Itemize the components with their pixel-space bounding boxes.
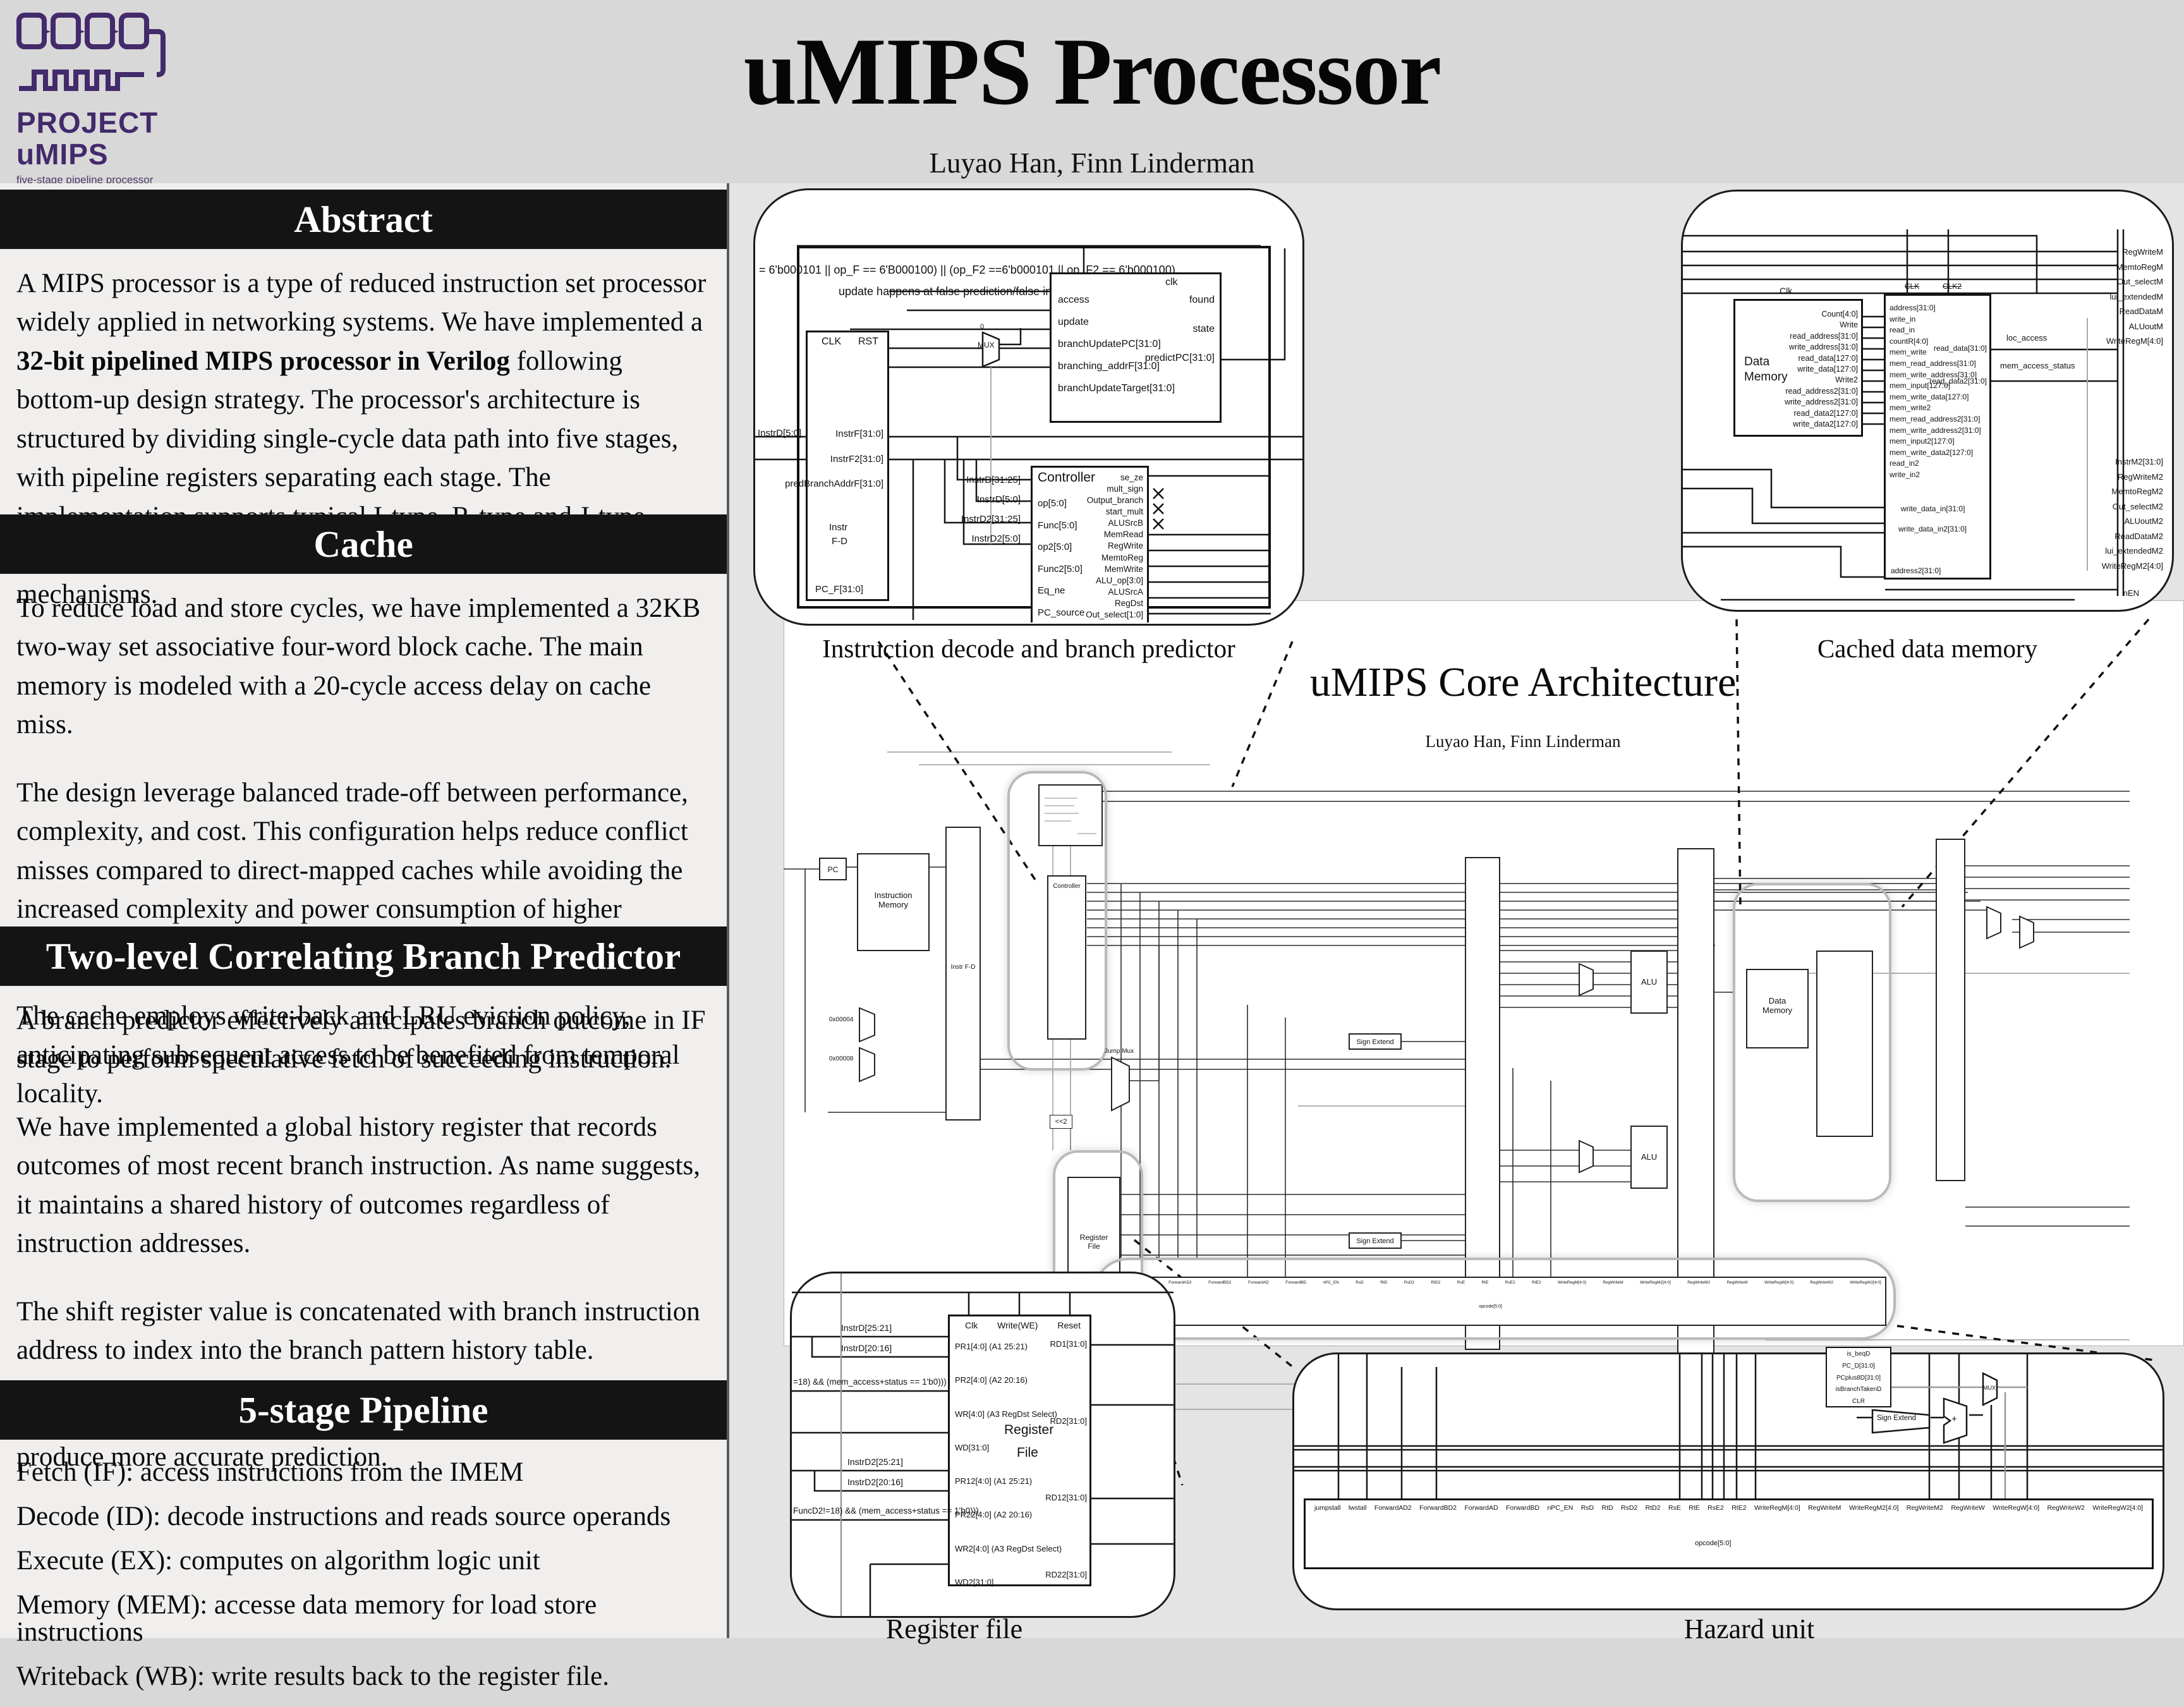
cache-port-label: mem_input2[127:0] [1890, 437, 1981, 446]
controller-output-port: Out_select[1:0] [1086, 610, 1143, 619]
cache-clk-label: CLK [1905, 282, 1919, 291]
controller-output-port: MemRead [1104, 530, 1143, 539]
cache-port-label: mem_write_data[127:0] [1890, 392, 1981, 401]
hazard-unit-block: jumpstalllwstallForwardAD2ForwardBD2Forw… [1304, 1498, 2154, 1569]
controller-output-port: MemtoReg [1101, 553, 1143, 562]
cache-locaccess-label: loc_access [2006, 333, 2047, 343]
bus-labels-top: RegWriteMMemtoRegMOut_selectMlui_extende… [2106, 247, 2163, 346]
dm-clk-label: Clk [1780, 286, 1792, 296]
hazard-signal-label: WriteRegW[4:0] [1993, 1504, 2039, 1512]
bus-signal-label: Out_selectM [2117, 277, 2163, 286]
hazard-signal-label: WriteRegW[4:0] [1764, 1280, 1793, 1285]
hazard-callout: jumpstalllwstallForwardAD2ForwardBD2Forw… [1292, 1352, 2164, 1610]
cache-wdin-label: write_data_in[31:0] [1901, 504, 1965, 513]
hazard-signal-label: RtD2 [1646, 1504, 1661, 1512]
hazard-signal-label: ForwardBD [1506, 1504, 1539, 1512]
fd-register-block: CLK RST InstrF[31:0]InstrF2[31:0]predBra… [806, 331, 889, 601]
hazard-signal-label: WriteRegM[4:0] [1558, 1280, 1586, 1285]
bp-paragraph-2: We have implemented a global history reg… [16, 1108, 713, 1263]
hazard-signal-label: RegWriteM [1603, 1280, 1623, 1285]
cache-port-label: mem_write_data2[127:0] [1890, 448, 1981, 457]
cache-port-label: read_in2 [1890, 459, 1981, 468]
rf-wire-c: =18) && (mem_access+status == 1'b0))) [793, 1377, 947, 1387]
bus-signal-label: lui_extendedM2 [2105, 546, 2163, 556]
controller-wire-labels: InstrD[31:25]InstrD[5:0]InstrD2[31:25]In… [938, 475, 1021, 544]
bus-signal-label: lui_extendedM [2109, 292, 2163, 301]
sidebar: Abstract A MIPS processor is a type of r… [0, 183, 729, 1638]
controller-output-port: ALUSrcB [1108, 518, 1143, 528]
dm-port-label: write_address2[31:0] [1785, 398, 1858, 406]
cache-out2-label: read_data2[31:0] [1929, 377, 1987, 386]
core-pc-block: PC [819, 858, 847, 880]
pipeline-stage-line: Memory (MEM): accesse data memory for lo… [16, 1591, 713, 1646]
section-title-abstract: Abstract [0, 190, 727, 249]
hazard-top-labels: jumpstalllwstallForwardAD2ForwardBD2Forw… [1314, 1504, 2143, 1512]
dm-port-label: read_data2[127:0] [1794, 409, 1858, 418]
dm-port-label: write_data2[127:0] [1793, 420, 1858, 428]
hazard-signal-label: ForwardBD2 [1208, 1280, 1231, 1285]
rf-top-labels: ClkWrite(WE)Reset [965, 1320, 1081, 1330]
hazard-pc-port: PC_D[31:0] [1842, 1363, 1875, 1370]
core-mw-pipeline-register [1936, 839, 1965, 1181]
cache-port-label: address[31:0] [1890, 303, 1981, 312]
predictor-output-port: state [1192, 324, 1215, 335]
pipeline-text: Fetch (IF): access instructions from the… [16, 1459, 713, 1707]
hazard-pc-port: CLR [1852, 1398, 1865, 1405]
hazard-signal-label: RegWriteM2 [1687, 1280, 1710, 1285]
hazard-signal-label: RsE2 [1708, 1504, 1724, 1512]
hazard-signal-label: RtD [1602, 1504, 1613, 1512]
predictor-clk-label: clk [1165, 277, 1178, 288]
hazard-signal-label: ForwardBD2 [1419, 1504, 1457, 1512]
dm-port-label: write_address[31:0] [1789, 343, 1858, 351]
hazard-caption: Hazard unit [1528, 1613, 1970, 1645]
controller-output-port: ALU_op[3:0] [1096, 576, 1143, 585]
core-shift-block: <<2 [1050, 1115, 1072, 1129]
dm-title-1: Data [1744, 355, 1769, 369]
hazard-signal-label: RsE2 [1505, 1280, 1515, 1285]
rf-top-port: Clk [965, 1320, 978, 1330]
core-jumpmux-label: Jump Mux [1105, 1048, 1134, 1055]
fd-signal-label: predBranchAddrF[31:0] [785, 478, 883, 489]
controller-highlight [1007, 771, 1107, 1071]
memory-callout: Clk Data Memory Count[4:0]Writeread_addr… [1681, 190, 2174, 612]
rf-right-port: RD12[31:0] [1045, 1493, 1087, 1502]
abstract-pre: A MIPS processor is a type of reduced in… [16, 269, 707, 337]
hazard-signal-label: RtD [1380, 1280, 1387, 1285]
fd-name-1: Instr [829, 522, 847, 533]
hazard-opcode-label: opcode[5:0] [1695, 1540, 1732, 1547]
hazard-signal-label: RsD [1581, 1504, 1594, 1512]
cache-port-label: mem_write2 [1890, 403, 1981, 412]
hazard-callout-wires [1294, 1354, 2163, 1608]
decode-caption: Instruction decode and branch predictor [808, 633, 1250, 664]
dm-port-label: Count[4:0] [1821, 310, 1858, 319]
hazard-signal-label: WriteRegM[4:0] [1754, 1504, 1800, 1512]
regfile-caption: Register file [733, 1613, 1175, 1645]
register-file-block: ClkWrite(WE)Reset PR1[4:0] (A1 25:21)PR2… [948, 1315, 1091, 1586]
hazard-signal-label: jumpstall [1314, 1504, 1340, 1512]
core-alu1-block: ALU [1630, 951, 1668, 1014]
cache-memstatus-label: mem_access_status [2000, 361, 2075, 370]
fd-name-2: F-D [832, 536, 847, 547]
controller-wire-label: InstrD2[5:0] [971, 533, 1021, 544]
dm-port-label: read_data[127:0] [1798, 354, 1858, 363]
bus-signal-label: ReadDataM [2120, 307, 2163, 316]
hazard-signal-label: lwstall [1349, 1504, 1367, 1512]
hazard-signal-label: nPC_EN [1323, 1280, 1339, 1285]
pipeline-stage-line: Fetch (IF): access instructions from the… [16, 1459, 713, 1486]
section-title-pipeline: 5-stage Pipeline [0, 1380, 727, 1440]
core-hazard-strip: jumpstalllwstallForwardAD2ForwardBD2Forw… [1103, 1277, 1886, 1326]
hazard-mux-label: MUX [1983, 1385, 1996, 1391]
controller-inputs: op[5:0]Func[5:0]op2[5:0]Func2[5:0]Eq_neP… [1038, 498, 1084, 618]
hazard-signal-label: RegWriteM [1808, 1504, 1841, 1512]
decode-callout: = 6'b000101 || op_F == 6'B000100) || (op… [753, 188, 1304, 626]
decode-mux-zero: 0 [980, 323, 984, 331]
hazard-strip-opcode: opcode[5:0] [1479, 1304, 1502, 1309]
fd-signal-label: InstrF2[31:0] [830, 454, 883, 465]
controller-output-port: start_mult [1106, 507, 1143, 516]
rf-top-port: Write(WE) [997, 1320, 1038, 1330]
hazard-pc-block-labels: is_beqDPC_D[31:0]PCplus8D[31:0]isBranchT… [1829, 1351, 1888, 1405]
rf-right-ports: RD1[31:0]RD2[31:0]RD12[31:0]RD22[31:0] [1045, 1339, 1087, 1579]
cache-block: CLK CLK2 address[31:0]write_inread_incou… [1884, 294, 1991, 580]
bus-signal-label: MemtoRegM2 [2111, 487, 2163, 496]
core-const1-label: 0x00004 [829, 1016, 853, 1023]
cache-wdin2-label: write_data_in2[31:0] [1898, 525, 1967, 533]
hazard-signal-label: RtE2 [1532, 1280, 1541, 1285]
core-sign-extend1: Sign Extend [1349, 1033, 1402, 1050]
fd-instrd-label: InstrD[5:0] [758, 428, 801, 439]
hazard-signal-label: RsE [1457, 1280, 1465, 1285]
hazard-signal-label: nPC_EN [1547, 1504, 1573, 1512]
controller-input-port: op2[5:0] [1038, 542, 1084, 552]
core-sign-extend2: Sign Extend [1349, 1232, 1402, 1249]
hazard-signal-label: RtE [1481, 1280, 1488, 1285]
controller-input-port: Func[5:0] [1038, 520, 1084, 531]
hazard-signal-label: ForwardAD [1464, 1504, 1498, 1512]
cache-out1-label: read_data[31:0] [1934, 344, 1987, 353]
cache-port-label: mem_read_address[31:0] [1890, 359, 1981, 368]
hazard-pc-port: is_beqD [1847, 1351, 1871, 1358]
hazard-signal-label: RegWriteM2 [1907, 1504, 1943, 1512]
predictor-output-port: found [1189, 295, 1215, 306]
hazard-pc-block: is_beqDPC_D[31:0]PCplus8D[31:0]isBranchT… [1826, 1347, 1891, 1407]
fd-signal-label: InstrF[31:0] [835, 428, 883, 439]
cache-left-ports: address[31:0]write_inread_incountR[4:0]m… [1890, 303, 1981, 479]
memory-caption: Cached data memory [1706, 633, 2149, 664]
predictor-outputs: foundstatepredictPC[31:0] [1145, 295, 1215, 364]
dm-port-label: Write [1840, 320, 1858, 329]
fd-rst-label: RST [858, 336, 878, 348]
controller-output-port: ALUSrcA [1108, 587, 1143, 597]
hazard-signal-label: RsD [1356, 1280, 1364, 1285]
core-const2-label: 0x00008 [829, 1055, 853, 1062]
dm-port-label: read_address[31:0] [1790, 332, 1858, 341]
core-imem-label1: Instruction [858, 891, 928, 901]
core-architecture-title: uMIPS Core Architecture [1232, 659, 1814, 707]
hazard-signal-label: RegWriteW2 [1810, 1280, 1833, 1285]
controller-input-port: op[5:0] [1038, 498, 1084, 509]
abstract-text: A MIPS processor is a type of reduced in… [16, 264, 713, 643]
dm-port-label: read_address2[31:0] [1785, 387, 1858, 396]
rf-wire-b: InstrD[20:16] [841, 1343, 892, 1353]
bp-paragraph-1: A branch predictor effectively anticipat… [16, 1001, 713, 1079]
bus-signal-label: RegWriteM2 [2118, 472, 2163, 482]
hazard-signal-label: WriteRegW2[4:0] [1850, 1280, 1881, 1285]
hazard-signal-label: RtD2 [1431, 1280, 1441, 1285]
controller-wire-label: InstrD2[31:25] [961, 514, 1021, 525]
core-imem-label2: Memory [858, 901, 928, 910]
cache-address2-label: address2[31:0] [1891, 566, 1941, 575]
hazard-signal-label: RsD2 [1404, 1280, 1414, 1285]
hazard-signal-label: WriteRegM2[4:0] [1640, 1280, 1671, 1285]
abstract-bold: 32-bit pipelined MIPS processor in Veril… [16, 346, 510, 376]
pipeline-stage-line: Decode (ID): decode instructions and rea… [16, 1503, 713, 1530]
diagram-area: uMIPS Core Architecture Luyao Han, Finn … [729, 183, 2184, 1638]
bus-signal-label: WriteRegM[4:0] [2106, 336, 2163, 346]
controller-wire-label: InstrD[5:0] [977, 494, 1021, 505]
hazard-signal-label: RsE [1668, 1504, 1681, 1512]
hazard-plus-label: + [1951, 1414, 1957, 1425]
bus-signal-label: WriteRegM2[4:0] [2102, 561, 2163, 571]
pipeline-stage-line: Writeback (WB): write results back to th… [16, 1663, 713, 1690]
controller-output-port: se_ze [1120, 473, 1143, 482]
poster-root: { "header": { "title": "uMIPS Processor"… [0, 0, 2184, 1638]
controller-input-port: Func2[5:0] [1038, 564, 1084, 574]
controller-output-port: mult_sign [1107, 484, 1143, 494]
regfile-callout: ClkWrite(WE)Reset PR1[4:0] (A1 25:21)PR2… [790, 1272, 1175, 1618]
core-fd-register: Instr F-D [945, 827, 981, 1121]
dm-port-label: write_data[127:0] [1797, 365, 1858, 374]
cache-port-label: write_in2 [1890, 470, 1981, 479]
controller-output-port: MemWrite [1105, 564, 1143, 574]
bus-signal-label: ALUoutM [2129, 322, 2163, 331]
branch-predictor-block: clk accessupdatebranchUpdatePC[31:0]bran… [1050, 272, 1222, 423]
dm-title-2: Memory [1744, 370, 1788, 384]
core-architecture-subtitle: Luyao Han, Finn Linderman [1232, 732, 1814, 751]
bus-signal-label: ReadDataM2 [2114, 532, 2163, 541]
hazard-signal-label: RegWriteW [1951, 1504, 1984, 1512]
bus-signal-label: ALUoutM2 [2125, 516, 2163, 526]
controller-input-port: PC_source [1038, 607, 1084, 618]
section-title-branch-predictor: Two-level Correlating Branch Predictor [0, 926, 727, 986]
predictor-input-port: branchUpdateTarget[31:0] [1058, 383, 1175, 394]
rf-right-port: RD2[31:0] [1050, 1416, 1087, 1426]
pipeline-stage-line: Execute (EX): computes on algorithm logi… [16, 1547, 713, 1574]
rf-wire-d: InstrD2[25:21] [847, 1457, 903, 1467]
controller-output-port: RegWrite [1108, 541, 1143, 550]
controller-output-port: RegDst [1115, 598, 1143, 608]
poster-title: uMIPS Processor [0, 16, 2184, 126]
bus-signal-label: RegWriteM [2122, 247, 2163, 257]
controller-input-port: Eq_ne [1038, 585, 1084, 596]
hazard-signal-label: WriteRegW2[4:0] [2092, 1504, 2143, 1512]
rf-title-2: File [1017, 1445, 1038, 1461]
hazard-pc-port: PCplus8D[31:0] [1836, 1375, 1881, 1382]
dmem-highlight [1733, 883, 1891, 1202]
decode-mux-label: MUX [978, 341, 995, 349]
hazard-signal-label: RtE2 [1732, 1504, 1746, 1512]
rf-wire-e: InstrD2[20:16] [847, 1477, 903, 1487]
controller-wire-label: InstrD[31:25] [966, 475, 1021, 485]
cache-clk2-label: CLK2 [1943, 282, 1962, 291]
cache-port-label: mem_write_address2[31:0] [1890, 426, 1981, 435]
bus-signal-label: InstrM2[31:0] [2115, 457, 2163, 466]
core-imem-block: Instruction Memory [857, 853, 930, 951]
hazard-signal-label: ForwardAD2 [1374, 1504, 1412, 1512]
section-title-cache: Cache [0, 514, 727, 574]
poster-authors: Luyao Han, Finn Linderman [0, 147, 2184, 179]
rf-wire-f: FuncD2!=18) && (mem_access+status == 1'b… [793, 1506, 979, 1516]
nen-label: nEN [2123, 588, 2139, 598]
cache-port-label: mem_read_address2[31:0] [1890, 415, 1981, 423]
hazard-signal-label: RtE [1689, 1504, 1700, 1512]
controller-block: Controller op[5:0]Func[5:0]op2[5:0]Func2… [1031, 466, 1149, 623]
fd-pc-label: PC_F[31:0] [815, 584, 863, 595]
rf-top-port: Reset [1057, 1320, 1081, 1330]
hazard-strip-labels: jumpstalllwstallForwardAD2ForwardBD2Forw… [1108, 1280, 1881, 1285]
rf-right-port: RD22[31:0] [1045, 1570, 1087, 1579]
hazard-signal-label: RegWriteW [1727, 1280, 1748, 1285]
fd-clk-label: CLK [822, 336, 841, 348]
hazard-signal-label: RegWriteW2 [2047, 1504, 2085, 1512]
rf-right-port: RD1[31:0] [1050, 1339, 1087, 1349]
hazard-signal-label: RsD2 [1621, 1504, 1637, 1512]
cache-port-label: read_in [1890, 325, 1981, 334]
hazard-signal-label: ForwardAD [1248, 1280, 1269, 1285]
dm-port-label: Write2 [1835, 375, 1858, 384]
hazard-signal-label: WriteRegM2[4:0] [1849, 1504, 1899, 1512]
hazard-pc-port: isBranchTakenD [1836, 1386, 1882, 1393]
core-alu2-block: ALU [1630, 1126, 1668, 1189]
bus-labels-bottom: InstrM2[31:0]RegWriteM2MemtoRegM2Out_sel… [2102, 457, 2163, 571]
cache-port-label: write_in [1890, 315, 1981, 324]
bp-paragraph-3: The shift register value is concatenated… [16, 1292, 713, 1370]
rf-wire-a: InstrD[25:21] [841, 1323, 892, 1333]
data-memory-block: Clk Data Memory Count[4:0]Writeread_addr… [1733, 299, 1863, 437]
bus-signal-label: MemtoRegM [2116, 262, 2163, 272]
hazard-signextend-label: Sign Extend [1877, 1414, 1916, 1422]
controller-outputs: se_zemult_signOutput_branchstart_multALU… [1086, 473, 1143, 619]
bus-signal-label: Out_selectM2 [2113, 502, 2163, 511]
dm-ports: Count[4:0]Writeread_address[31:0]write_a… [1785, 310, 1858, 428]
controller-output-port: Output_branch [1087, 495, 1143, 505]
cache-paragraph-1: To reduce load and store cycles, we have… [16, 589, 713, 744]
predictor-output-port: predictPC[31:0] [1145, 353, 1215, 364]
hazard-signal-label: ForwardBD [1285, 1280, 1306, 1285]
